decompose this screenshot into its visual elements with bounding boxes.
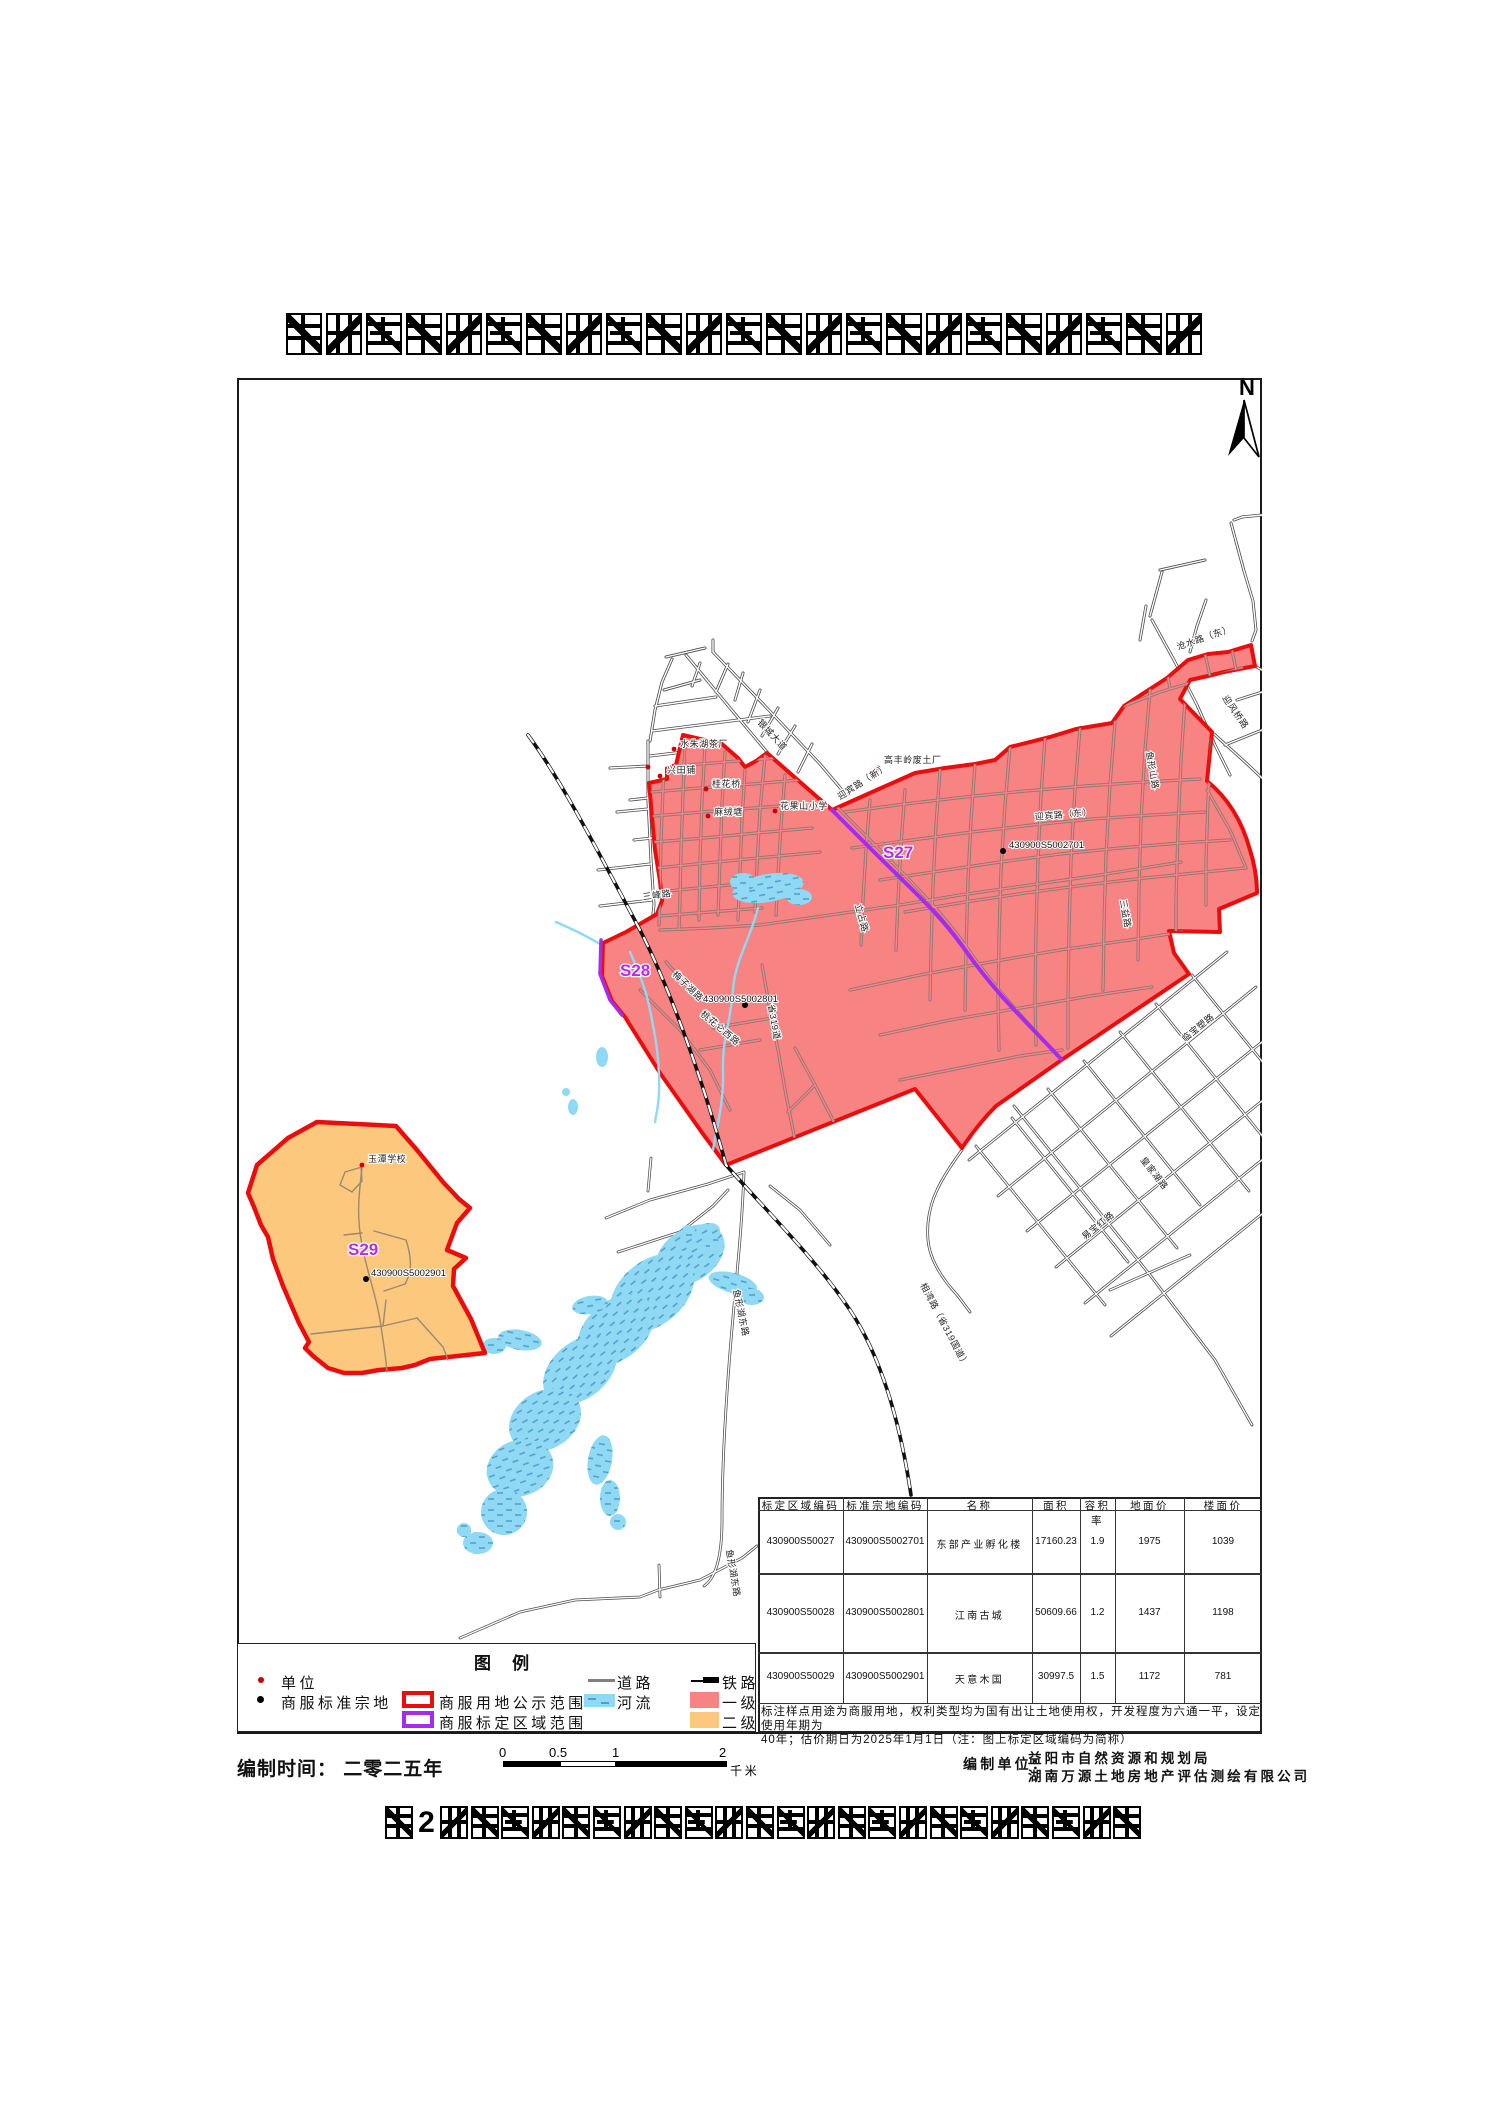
svg-text:S28: S28 bbox=[620, 961, 650, 980]
svg-text:水朱湖茶厂: 水朱湖茶厂 bbox=[680, 738, 728, 749]
svg-text:桂花桥: 桂花桥 bbox=[712, 778, 741, 789]
svg-text:玉潭学校: 玉潭学校 bbox=[368, 1153, 406, 1164]
svg-text:沧水路（东）: 沧水路（东） bbox=[1175, 623, 1233, 652]
svg-text:430900S5002701: 430900S5002701 bbox=[1009, 840, 1084, 851]
svg-text:麻绒塘: 麻绒塘 bbox=[714, 806, 743, 817]
svg-text:430900S5002801: 430900S5002801 bbox=[703, 994, 778, 1005]
svg-text:银城大道: 银城大道 bbox=[756, 717, 790, 753]
svg-text:S29: S29 bbox=[348, 1240, 378, 1259]
svg-text:S27: S27 bbox=[883, 843, 913, 862]
svg-text:花果山小学: 花果山小学 bbox=[780, 800, 828, 811]
svg-text:高丰岭废土厂: 高丰岭废土厂 bbox=[884, 754, 942, 765]
svg-text:兴田铺: 兴田铺 bbox=[667, 764, 696, 775]
svg-text:430900S5002901: 430900S5002901 bbox=[371, 1268, 446, 1279]
svg-text:临宝塑路: 临宝塑路 bbox=[1179, 1011, 1216, 1044]
svg-text:鱼形湖东路: 鱼形湖东路 bbox=[724, 1548, 743, 1597]
svg-text:相湾路（省319国道）: 相湾路（省319国道） bbox=[918, 1281, 972, 1369]
svg-text:迎风桥路: 迎风桥路 bbox=[1220, 693, 1251, 731]
